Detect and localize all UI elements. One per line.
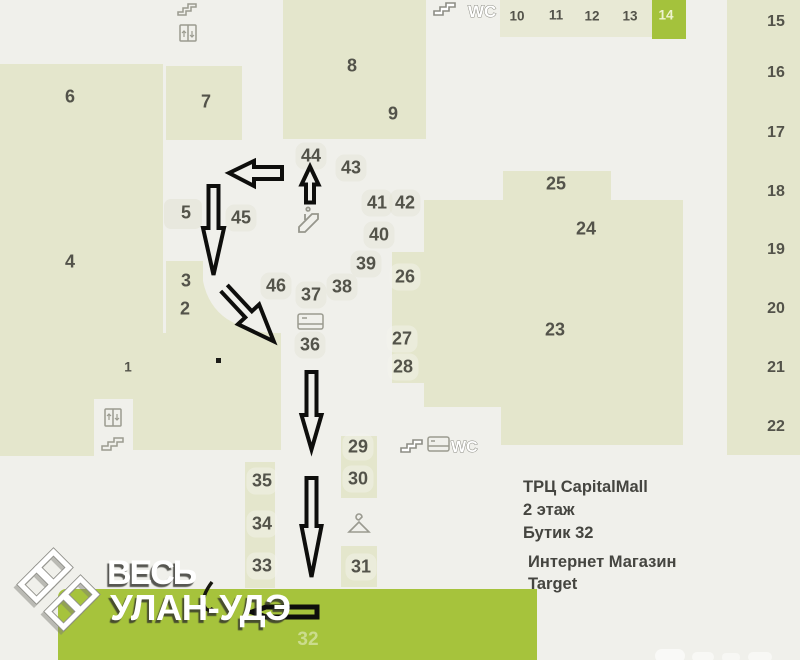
svg-text:WC: WC	[451, 439, 478, 456]
svg-text:WC: WC	[468, 2, 496, 21]
